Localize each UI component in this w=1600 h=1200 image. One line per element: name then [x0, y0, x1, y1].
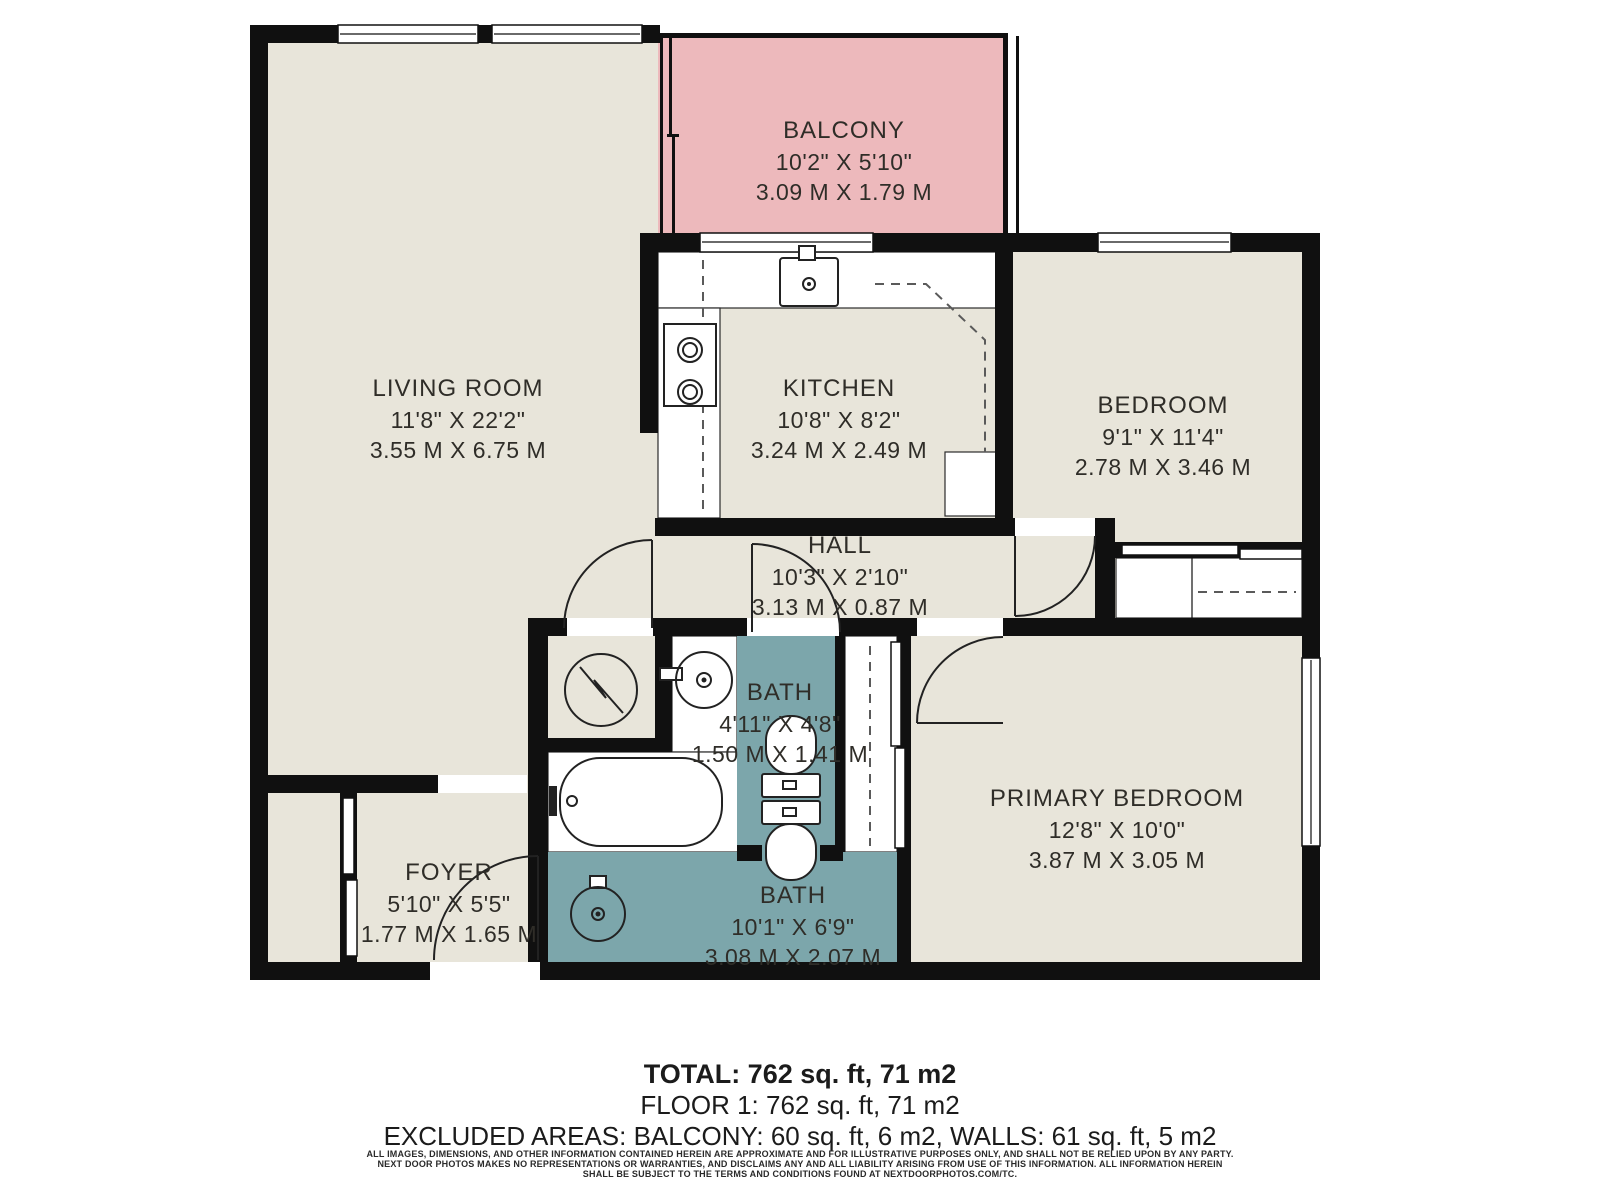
floor-plan-page: BALCONY 10'2" X 5'10" 3.09 M X 1.79 M LI… [0, 0, 1600, 1200]
foyer-living-opening [438, 775, 527, 793]
room-label-bath-upper: BATH 4'11" X 4'8" 1.50 M X 1.41 M [692, 678, 868, 770]
sliding-door-panel [1122, 545, 1238, 555]
room-label-bedroom: BEDROOM 9'1" X 11'4" 2.78 M X 3.46 M [1075, 391, 1251, 483]
toilet-handle [783, 781, 796, 789]
wall [1095, 518, 1115, 618]
room-label-living-room: LIVING ROOM 11'8" X 22'2" 3.55 M X 6.75 … [370, 374, 546, 466]
wall [1302, 233, 1320, 980]
laundry-door-opening [567, 618, 653, 636]
room-label-balcony: BALCONY 10'2" X 5'10" 3.09 M X 1.79 M [756, 116, 932, 208]
wall [548, 738, 655, 752]
entry-door-opening [430, 962, 540, 980]
balcony-rail [1016, 36, 1019, 233]
balcony-slider-panel [672, 137, 675, 234]
area-summary: TOTAL: 762 sq. ft, 71 m2 FLOOR 1: 762 sq… [0, 1058, 1600, 1152]
room-name: LIVING ROOM [370, 374, 546, 405]
disclaimer: ALL IMAGES, DIMENSIONS, AND OTHER INFORM… [0, 1149, 1600, 1179]
toilet-icon [766, 824, 816, 880]
balcony-slider-panel [669, 36, 672, 136]
sliding-door-panel [891, 642, 901, 746]
bedroom-closet [1116, 558, 1302, 618]
room-dims-imperial: 4'11" X 4'8" [692, 709, 868, 740]
room-dims-metric: 2.78 M X 3.46 M [1075, 452, 1251, 483]
room-name: BALCONY [756, 116, 932, 147]
total-area-text: TOTAL: 762 sq. ft, 71 m2 [0, 1058, 1600, 1090]
stove-icon [664, 324, 716, 406]
tub-faucet-icon [549, 786, 557, 816]
room-dims-imperial: 12'8" X 10'0" [990, 815, 1244, 846]
sliding-door-panel [895, 748, 905, 848]
wall [640, 233, 658, 433]
room-dims-imperial: 9'1" X 11'4" [1075, 422, 1251, 453]
balcony-slider-panel [667, 134, 679, 137]
balcony-rail [655, 33, 1008, 38]
room-dims-imperial: 5'10" X 5'5" [361, 889, 537, 920]
room-label-bath-lower: BATH 10'1" X 6'9" 3.08 M X 2.07 M [705, 881, 881, 973]
disclaimer-line: NEXT DOOR PHOTOS MAKES NO REPRESENTATION… [0, 1159, 1600, 1169]
wall [250, 775, 438, 793]
sliding-door-panel [346, 880, 357, 956]
primary-door-opening [917, 618, 1003, 636]
room-dims-imperial: 10'2" X 5'10" [756, 147, 932, 178]
bath-sink-dot [596, 912, 601, 917]
room-name: BATH [692, 678, 868, 709]
room-dims-metric: 3.55 M X 6.75 M [370, 435, 546, 466]
room-name: BATH [705, 881, 881, 912]
disclaimer-line: ALL IMAGES, DIMENSIONS, AND OTHER INFORM… [0, 1149, 1600, 1159]
disclaimer-line: SHALL BE SUBJECT TO THE TERMS AND CONDIT… [0, 1169, 1600, 1179]
room-dims-metric: 3.08 M X 2.07 M [705, 942, 881, 973]
wall [995, 252, 1013, 518]
room-dims-imperial: 11'8" X 22'2" [370, 405, 546, 436]
room-label-primary-bedroom: PRIMARY BEDROOM 12'8" X 10'0" 3.87 M X 3… [990, 784, 1244, 876]
wall [655, 636, 672, 752]
room-dims-imperial: 10'8" X 8'2" [751, 405, 927, 436]
balcony-slider-track [660, 36, 663, 234]
room-dims-metric: 1.50 M X 1.41 M [692, 739, 868, 770]
sliding-door-panel [1240, 549, 1302, 559]
room-name: PRIMARY BEDROOM [990, 784, 1244, 815]
room-dims-metric: 3.13 M X 0.87 M [752, 592, 928, 623]
room-dims-imperial: 10'1" X 6'9" [705, 912, 881, 943]
room-dims-metric: 3.09 M X 1.79 M [756, 177, 932, 208]
room-label-hall: HALL 10'3" X 2'10" 3.13 M X 0.87 M [752, 531, 928, 623]
room-name: KITCHEN [751, 374, 927, 405]
room-dims-metric: 3.24 M X 2.49 M [751, 435, 927, 466]
room-label-foyer: FOYER 5'10" X 5'5" 1.77 M X 1.65 M [361, 858, 537, 950]
kitchen-drain-dot [807, 282, 811, 286]
room-dims-metric: 1.77 M X 1.65 M [361, 919, 537, 950]
room-dims-imperial: 10'3" X 2'10" [752, 562, 928, 593]
bedroom-door-opening [1015, 518, 1095, 536]
balcony-rail [1003, 33, 1008, 234]
refrigerator-symbol [945, 452, 998, 516]
sliding-door-panel [343, 798, 354, 874]
room-dims-metric: 3.87 M X 3.05 M [990, 845, 1244, 876]
room-label-kitchen: KITCHEN 10'8" X 8'2" 3.24 M X 2.49 M [751, 374, 927, 466]
bathtub-icon [560, 758, 722, 846]
floor-area-text: FLOOR 1: 762 sq. ft, 71 m2 [0, 1090, 1600, 1121]
wall [737, 845, 762, 861]
toilet-handle [783, 808, 796, 816]
room-name: BEDROOM [1075, 391, 1251, 422]
wall [250, 25, 268, 980]
room-name: FOYER [361, 858, 537, 889]
excluded-areas-text: EXCLUDED AREAS: BALCONY: 60 sq. ft, 6 m2… [0, 1121, 1600, 1152]
room-name: HALL [752, 531, 928, 562]
kitchen-faucet-icon [799, 246, 815, 260]
